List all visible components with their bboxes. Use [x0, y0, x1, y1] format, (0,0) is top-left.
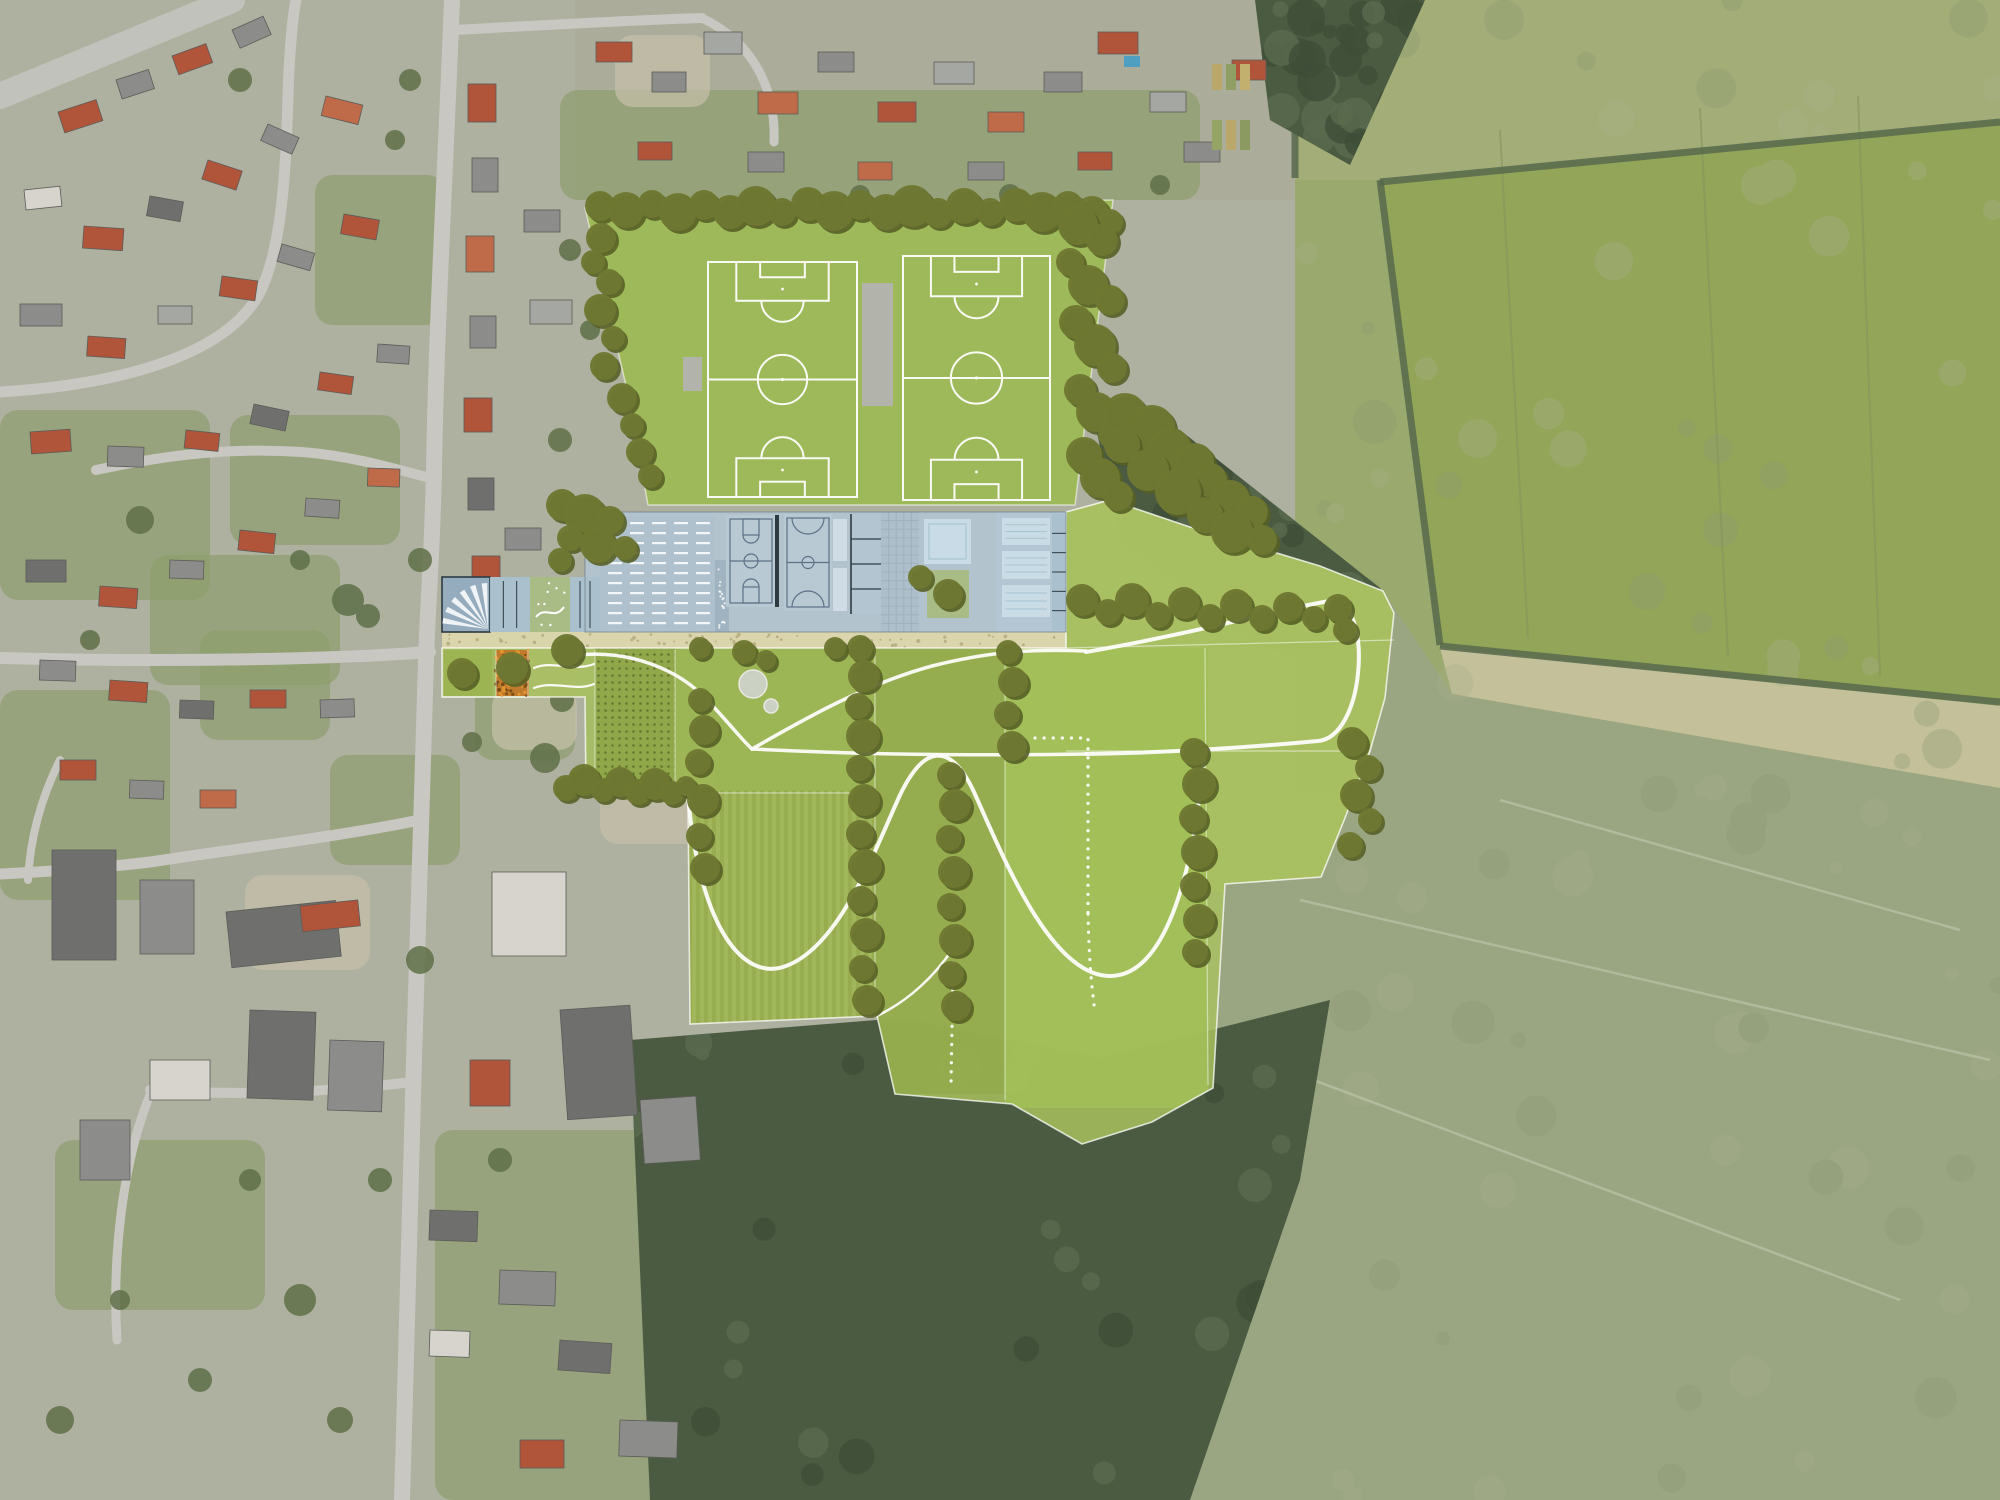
canopy-blob — [724, 1359, 743, 1378]
house-roof — [505, 528, 541, 550]
texture-blob — [1330, 990, 1372, 1032]
house-roof — [558, 1340, 612, 1374]
house-roof — [1078, 152, 1112, 170]
flower-speckle — [505, 692, 508, 695]
pond — [739, 670, 767, 698]
house-roof — [169, 560, 204, 579]
tree — [1168, 587, 1200, 619]
texture-blob — [1691, 612, 1713, 634]
rooms-block — [490, 577, 530, 632]
house-roof — [24, 186, 62, 210]
paving-speckle — [499, 638, 501, 640]
house-roof — [238, 530, 276, 554]
tree — [850, 918, 882, 950]
parking-stall — [652, 582, 666, 584]
texture-blob — [1894, 753, 1910, 769]
photo-tree — [488, 1148, 512, 1172]
texture-blob — [1336, 860, 1369, 893]
house-roof — [492, 872, 566, 956]
paving-speckle — [796, 635, 798, 637]
house-roof — [470, 1060, 510, 1106]
texture-blob — [1778, 109, 1809, 140]
flower-speckle — [524, 654, 526, 656]
texture-blob — [1939, 359, 1966, 386]
paving-speckle — [768, 633, 771, 636]
parking-stall — [630, 562, 644, 564]
tree — [938, 856, 970, 888]
tree — [994, 701, 1020, 727]
tree — [938, 961, 964, 987]
paving-speckle — [448, 634, 450, 636]
tree — [847, 886, 875, 914]
texture-blob — [1676, 1385, 1702, 1411]
plaza-dot — [719, 591, 721, 593]
courtyard-dot — [546, 591, 548, 593]
tree — [848, 660, 880, 692]
tree — [1180, 738, 1208, 766]
tree — [1324, 594, 1352, 622]
canopy-blob — [727, 1321, 750, 1344]
texture-blob — [1946, 969, 1959, 982]
canopy-blob — [1195, 1317, 1229, 1351]
texture-blob — [1451, 1001, 1495, 1045]
parking-stall — [652, 542, 666, 544]
penalty-spot — [781, 288, 784, 291]
tree — [1340, 779, 1372, 811]
tree — [1211, 511, 1253, 553]
texture-blob — [1940, 1284, 1970, 1314]
paving-speckle — [880, 639, 882, 641]
tree — [937, 893, 963, 919]
house-roof — [80, 1120, 130, 1180]
tree — [848, 849, 882, 883]
house-roof — [468, 84, 496, 122]
texture-blob — [1738, 1013, 1769, 1044]
courtyard-dot — [537, 603, 539, 605]
house-roof — [140, 880, 194, 954]
texture-blob — [1795, 1452, 1815, 1472]
parking-stall — [652, 532, 666, 534]
texture-blob — [1860, 799, 1888, 827]
texture-blob — [1694, 783, 1709, 798]
paving-speckle — [894, 643, 898, 647]
house-roof — [758, 92, 798, 114]
canopy-blob — [1013, 1336, 1038, 1361]
paving-speckle — [715, 641, 717, 643]
house-roof — [200, 790, 236, 808]
flower-speckle — [523, 691, 526, 694]
courtyard-dot — [548, 582, 550, 584]
house-roof — [1044, 72, 1082, 92]
courtyard-dot — [549, 624, 551, 626]
texture-blob — [1696, 68, 1736, 108]
photo-tree — [548, 428, 572, 452]
house-roof — [300, 900, 360, 932]
plaza-dot — [719, 581, 721, 583]
tree — [688, 688, 712, 712]
tree — [590, 352, 618, 380]
canopy-blob — [1366, 32, 1382, 48]
flower-speckle — [524, 685, 527, 688]
texture-blob — [1436, 1331, 1450, 1345]
photo-tree — [126, 506, 154, 534]
tree — [638, 464, 662, 488]
tree — [1066, 584, 1098, 616]
house-roof — [377, 344, 410, 364]
paving-speckle — [499, 639, 503, 643]
paving-speckle — [1022, 643, 1025, 646]
house-roof — [638, 142, 672, 160]
allotment-plot — [1240, 64, 1250, 90]
photo-tree — [462, 732, 482, 752]
complex-courtyard — [530, 577, 570, 632]
paving-speckle — [891, 644, 894, 647]
tree — [1095, 285, 1125, 315]
grandstand — [683, 357, 702, 391]
parking-stall — [696, 582, 710, 584]
canopy-blob — [1099, 1313, 1134, 1348]
house-roof — [320, 699, 355, 718]
house-roof — [472, 158, 498, 192]
house-roof — [596, 42, 632, 62]
parking-stall — [630, 622, 644, 624]
canopy-blob — [1272, 1135, 1291, 1154]
house-roof — [470, 316, 496, 348]
fields-area-lawn — [585, 200, 1113, 505]
house-roof — [328, 1040, 384, 1112]
house-roof — [748, 152, 784, 172]
texture-blob — [1710, 1135, 1741, 1166]
house-roof — [619, 1420, 678, 1458]
paving-speckle — [943, 636, 946, 639]
allotment-plot — [1240, 120, 1250, 150]
canopy-blob — [1336, 24, 1356, 44]
texture-blob — [1628, 573, 1665, 610]
paving-speckle — [637, 640, 640, 643]
texture-blob — [1296, 242, 1318, 264]
tree — [1097, 353, 1127, 383]
flower-speckle — [498, 692, 501, 695]
pond — [764, 699, 778, 713]
texture-blob — [1552, 856, 1592, 896]
texture-blob — [1947, 1154, 1975, 1182]
paving-speckle — [650, 633, 653, 636]
paving-speckle — [732, 640, 735, 643]
paving-speckle — [737, 633, 741, 637]
house-roof — [988, 112, 1024, 132]
parking-stall — [652, 572, 666, 574]
house-roof — [524, 210, 560, 232]
tree — [939, 924, 971, 956]
tree — [689, 715, 719, 745]
tree — [1103, 481, 1133, 511]
sports-fields-area — [585, 200, 1113, 505]
center-spot — [975, 376, 978, 379]
parking-stall — [608, 622, 622, 624]
house-roof — [179, 700, 214, 719]
texture-blob — [1657, 1463, 1686, 1492]
house-roof — [184, 430, 220, 451]
texture-blob — [1915, 1377, 1957, 1419]
tree — [846, 755, 872, 781]
parking-stall — [674, 592, 688, 594]
parking-stall — [630, 532, 644, 534]
tree — [1182, 939, 1208, 965]
parking-stall — [696, 552, 710, 554]
photo-tree — [290, 550, 310, 570]
aerial-masterplan-image — [0, 0, 2000, 1500]
paving-speckle — [688, 634, 692, 638]
photo-tree — [368, 1168, 392, 1192]
texture-blob — [1922, 729, 1962, 769]
parking-stall — [674, 562, 688, 564]
texture-blob — [1729, 1355, 1770, 1396]
plaza-dot — [718, 626, 720, 628]
parking-stall — [674, 582, 688, 584]
plaza-dot — [722, 606, 724, 608]
tree — [846, 820, 874, 848]
texture-blob — [1516, 1096, 1557, 1137]
parking-stall — [630, 602, 644, 604]
paving-speckle — [992, 636, 994, 638]
house-roof — [87, 336, 126, 359]
photo-tree — [406, 946, 434, 974]
parking-stall — [652, 522, 666, 524]
texture-blob — [1484, 0, 1524, 40]
paving-speckle — [944, 640, 947, 643]
tree — [998, 667, 1028, 697]
canopy-blob — [1082, 1272, 1100, 1290]
canopy-blob — [695, 1046, 709, 1060]
texture-blob — [1480, 1172, 1516, 1208]
paving-speckle — [730, 638, 733, 641]
house-roof — [129, 780, 164, 799]
tree — [908, 565, 932, 589]
photo-tree — [228, 68, 252, 92]
courtyard-dot — [563, 591, 565, 593]
parking-stall — [652, 592, 666, 594]
texture-blob — [1370, 469, 1389, 488]
tree — [996, 640, 1020, 664]
parking-stall — [674, 572, 688, 574]
tree — [687, 784, 719, 816]
ground-patch — [330, 755, 460, 865]
photo-tree — [399, 69, 421, 91]
texture-blob — [1479, 849, 1510, 880]
canopy-blob — [1093, 1462, 1116, 1485]
paving-speckle — [657, 642, 660, 645]
texture-blob — [1830, 861, 1842, 873]
texture-blob — [1598, 101, 1635, 138]
parking-stall — [674, 542, 688, 544]
texture-blob — [1825, 636, 1849, 660]
canopy-blob — [1041, 1220, 1061, 1240]
flower-speckle — [509, 689, 512, 692]
tree — [586, 223, 616, 253]
paving-speckle — [632, 636, 636, 640]
house-roof — [107, 446, 144, 467]
texture-blob — [1595, 242, 1633, 280]
esplanade — [442, 632, 1082, 649]
parking-stall — [652, 612, 666, 614]
parking-stall — [630, 592, 644, 594]
photo-tree — [110, 1290, 130, 1310]
tree — [846, 719, 880, 753]
tree — [937, 762, 963, 788]
house-roof — [150, 1060, 210, 1100]
parking-stall — [696, 532, 710, 534]
tree — [1337, 832, 1363, 858]
flower-speckle — [521, 686, 523, 688]
map-canvas — [0, 0, 2000, 1500]
parking-stall — [696, 622, 710, 624]
tree — [620, 413, 644, 437]
parking-stall — [696, 562, 710, 564]
texture-blob — [1550, 430, 1587, 467]
tree — [1333, 618, 1357, 642]
paving-speckle — [505, 641, 507, 643]
canopy-blob — [842, 1053, 864, 1075]
parking-stall — [608, 592, 622, 594]
house-roof — [968, 162, 1004, 180]
allotment-plot — [1226, 120, 1236, 150]
photo-tree — [408, 548, 432, 572]
large-crop-field — [1380, 120, 2000, 700]
house-roof — [52, 850, 116, 960]
tree — [946, 188, 982, 224]
allotment-plot — [1212, 120, 1222, 150]
texture-blob — [1435, 472, 1462, 499]
texture-blob — [1908, 162, 1927, 181]
parking-stall — [608, 602, 622, 604]
house-roof — [247, 1010, 316, 1100]
house-roof — [530, 300, 572, 324]
canopy-blob — [1252, 1065, 1276, 1089]
tree — [685, 749, 711, 775]
paving-speckle — [988, 634, 991, 637]
paving-speckle — [586, 644, 589, 647]
parking-stall — [674, 532, 688, 534]
house-roof — [934, 62, 974, 84]
tree — [551, 634, 583, 666]
texture-blob — [1641, 775, 1678, 812]
courtyard-dot — [555, 587, 557, 589]
tree — [608, 192, 644, 228]
tree — [689, 637, 711, 659]
parking-stall — [674, 622, 688, 624]
tree — [1358, 808, 1382, 832]
paving-speckle — [476, 638, 479, 641]
photo-tree — [188, 1368, 212, 1392]
parking-stall — [674, 612, 688, 614]
canopy-blob — [691, 1407, 720, 1436]
tree — [936, 825, 962, 851]
plaza-dot — [722, 598, 724, 600]
paving-speckle — [916, 639, 920, 643]
photo-tree — [284, 1284, 316, 1316]
hall-wall — [775, 515, 779, 607]
tree — [626, 438, 654, 466]
tree — [580, 527, 616, 563]
esplanade-paving — [442, 632, 1082, 649]
allotment-plot — [1226, 64, 1236, 90]
tree — [447, 658, 477, 688]
square-pool — [924, 519, 971, 564]
house-roof — [26, 560, 66, 582]
parking-stall — [696, 592, 710, 594]
tree — [596, 269, 622, 295]
tree — [1181, 835, 1215, 869]
courtyard-tree — [933, 579, 963, 609]
paving-speckle — [522, 635, 525, 638]
tree — [1197, 604, 1223, 630]
texture-blob — [1862, 657, 1880, 675]
house-roof — [1150, 92, 1186, 112]
texture-blob — [1353, 400, 1397, 444]
paving-speckle — [448, 638, 450, 640]
tree — [1355, 755, 1381, 781]
photo-tree — [239, 1169, 261, 1191]
texture-blob — [1803, 80, 1835, 112]
paving-speckle — [458, 640, 461, 643]
house-roof — [250, 690, 286, 708]
texture-blob — [1376, 973, 1414, 1011]
parking-stall — [608, 612, 622, 614]
tree — [824, 637, 846, 659]
courtyard-dot — [540, 624, 542, 626]
house-roof — [1098, 32, 1138, 54]
photo-tree — [559, 239, 581, 261]
canopy-blob — [1054, 1246, 1080, 1272]
texture-blob — [1885, 1207, 1924, 1246]
texture-blob — [1458, 419, 1497, 458]
flower-speckle — [502, 686, 506, 690]
tree — [557, 525, 583, 551]
courtyard-dot — [543, 603, 545, 605]
tree — [847, 635, 873, 661]
flower-speckle — [501, 650, 503, 652]
parking-stall — [696, 612, 710, 614]
texture-blob — [1808, 1160, 1843, 1195]
paving-speckle — [446, 642, 450, 646]
flower-speckle — [511, 693, 514, 696]
photo-tree — [1150, 175, 1170, 195]
canopy-blob — [1323, 25, 1337, 39]
tree — [1337, 727, 1367, 757]
texture-blob — [1678, 419, 1696, 437]
canopy-blob — [1310, 18, 1325, 33]
plaza-dot — [719, 584, 721, 586]
parking-stall — [652, 602, 666, 604]
house-roof — [429, 1330, 470, 1357]
house-roof — [704, 32, 742, 54]
ground-patch — [200, 630, 330, 740]
parking-stall — [696, 602, 710, 604]
photo-tree — [530, 743, 560, 773]
photo-tree — [385, 130, 405, 150]
texture-blob — [1369, 1260, 1400, 1291]
texture-blob — [1577, 52, 1596, 71]
house-roof — [99, 586, 138, 609]
canopy-blob — [1272, 1, 1288, 17]
flower-speckle — [501, 683, 505, 687]
house-roof — [818, 52, 854, 72]
canopy-blob — [798, 1428, 828, 1458]
texture-blob — [1741, 166, 1780, 205]
parking-stall — [652, 622, 666, 624]
tree — [1086, 224, 1118, 256]
paving-speckle — [979, 642, 981, 644]
